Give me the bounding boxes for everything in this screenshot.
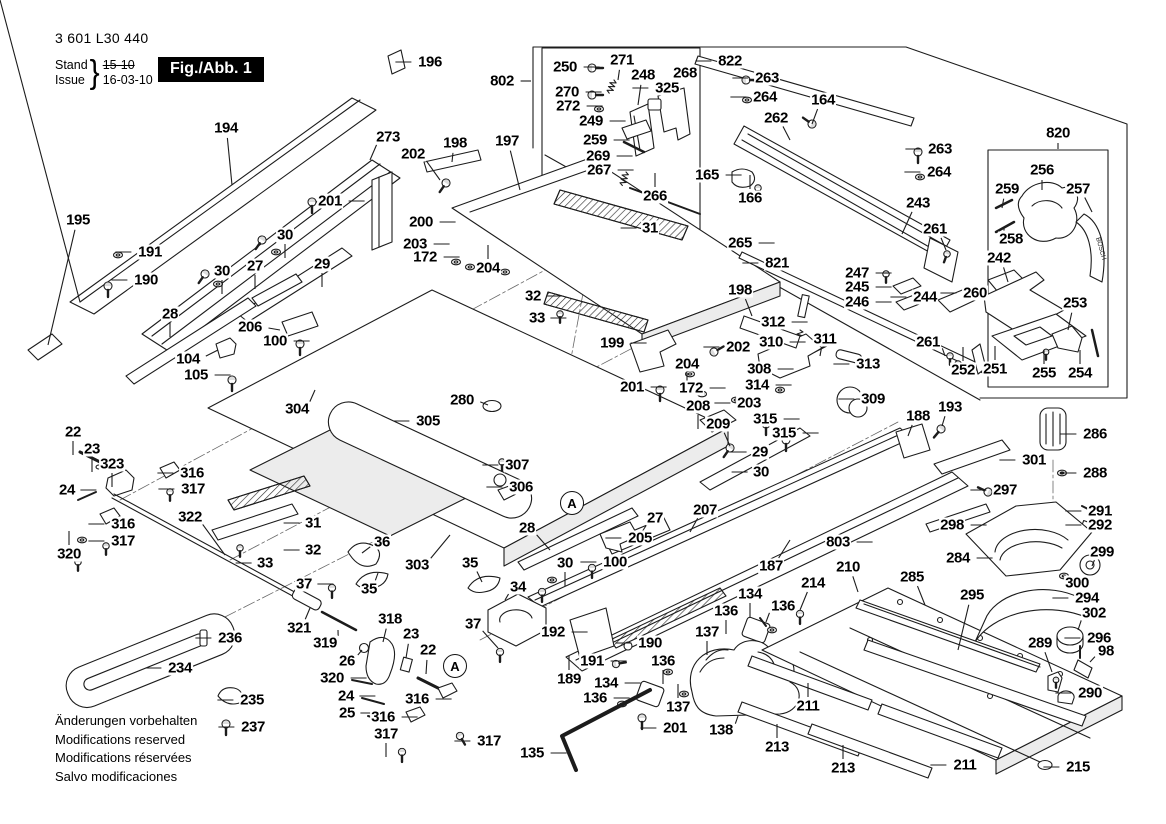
callout-197: 197 [494, 134, 520, 149]
leader-line [406, 644, 408, 658]
callout-237: 237 [240, 720, 266, 735]
callout-210: 210 [835, 560, 861, 575]
leader-line [902, 212, 912, 234]
callout-318: 318 [377, 612, 403, 627]
leader-line [783, 126, 790, 140]
leader-line [310, 390, 315, 402]
callout-271: 271 [609, 53, 635, 68]
callout-311: 311 [813, 332, 838, 347]
callout-319: 319 [312, 636, 338, 651]
callout-246: 246 [844, 295, 870, 310]
leader-line [1004, 267, 1008, 282]
leader-line [958, 605, 969, 650]
callout-306: 306 [508, 480, 534, 495]
callout-297: 297 [992, 483, 1018, 498]
callout-23: 23 [83, 442, 101, 457]
callout-37: 37 [295, 577, 313, 592]
figure-label: Fig./Abb. 1 [158, 57, 264, 82]
leader-line [452, 153, 453, 162]
callout-803: 803 [825, 535, 851, 550]
callout-208: 208 [685, 399, 711, 414]
callout-253: 253 [1062, 296, 1088, 311]
callout-213: 213 [764, 740, 790, 755]
callout-195: 195 [65, 213, 91, 228]
callout-35: 35 [360, 582, 378, 597]
callout-24: 24 [58, 483, 76, 498]
callout-313: 313 [855, 357, 881, 372]
callout-256: 256 [1029, 163, 1055, 178]
callout-135: 135 [519, 746, 545, 761]
callout-209: 209 [705, 417, 731, 432]
callout-325: 325 [654, 81, 680, 96]
callout-28: 28 [518, 521, 536, 536]
callout-255: 255 [1031, 366, 1057, 381]
callout-172: 172 [678, 381, 704, 396]
callout-821: 821 [764, 256, 790, 271]
leader-line [362, 547, 370, 553]
callout-29: 29 [751, 445, 769, 460]
callout-316: 316 [370, 710, 396, 725]
callout-265: 265 [727, 236, 753, 251]
callout-316: 316 [404, 692, 430, 707]
callout-298: 298 [939, 518, 965, 533]
callout-201: 201 [619, 380, 645, 395]
callout-191: 191 [137, 245, 163, 260]
callout-251: 251 [982, 362, 1008, 377]
leader-line [48, 230, 75, 345]
callout-172: 172 [412, 250, 438, 265]
callout-211: 211 [953, 758, 978, 773]
callout-236: 236 [217, 631, 243, 646]
callout-264: 264 [926, 165, 952, 180]
leader-line [1090, 657, 1095, 662]
callout-204: 204 [475, 261, 501, 276]
leader-line [618, 70, 619, 80]
callout-33: 33 [256, 556, 274, 571]
callout-272: 272 [555, 99, 581, 114]
callout-317: 317 [180, 482, 206, 497]
callout-28: 28 [161, 307, 179, 322]
callout-301: 301 [1021, 453, 1047, 468]
callout-202: 202 [400, 147, 426, 162]
callout-193: 193 [937, 400, 963, 415]
notice-fr: Modifications réservées [55, 749, 197, 768]
callout-205: 205 [627, 531, 653, 546]
leader-line [1078, 620, 1081, 630]
notice-es: Salvo modificaciones [55, 768, 197, 787]
callout-25: 25 [338, 706, 356, 721]
leader-line [1085, 198, 1092, 212]
notice-de: Änderungen vorbehalten [55, 712, 197, 731]
leader-line [375, 573, 378, 580]
leader-line [779, 540, 790, 558]
modifications-notice: Änderungen vorbehalten Modifications res… [55, 712, 197, 786]
callout-257: 257 [1065, 182, 1091, 197]
leader-line [537, 535, 550, 550]
callout-315: 315 [771, 426, 797, 441]
callout-34: 34 [509, 580, 527, 595]
notice-en: Modifications reserved [55, 731, 197, 750]
callout-307: 307 [504, 458, 530, 473]
callout-31: 31 [641, 221, 659, 236]
callout-211: 211 [796, 699, 821, 714]
callout-202: 202 [725, 340, 751, 355]
callout-321: 321 [286, 621, 312, 636]
callout-35: 35 [461, 556, 479, 571]
callout-285: 285 [899, 570, 925, 585]
parts-diagram-page: BOSCH [0, 0, 1166, 824]
leader-line [269, 328, 280, 330]
callout-199: 199 [599, 336, 625, 351]
callout-206: 206 [237, 320, 263, 335]
leader-line [820, 349, 821, 356]
leader-line [505, 594, 509, 600]
leader-line [483, 631, 498, 648]
leader-line [745, 299, 752, 316]
callout-316: 316 [179, 466, 205, 481]
callout-317: 317 [373, 727, 399, 742]
callout-250: 250 [552, 60, 578, 75]
callout-136: 136 [650, 654, 676, 669]
callout-317: 317 [476, 734, 502, 749]
callout-294: 294 [1074, 591, 1100, 606]
callout-322: 322 [177, 510, 203, 525]
leader-line [203, 524, 225, 555]
callout-214: 214 [800, 576, 826, 591]
callout-187: 187 [758, 559, 784, 574]
callout-22: 22 [64, 425, 82, 440]
callout-284: 284 [945, 551, 971, 566]
callout-137: 137 [694, 625, 720, 640]
leader-line [942, 416, 945, 426]
callout-268: 268 [672, 66, 698, 81]
callout-314: 314 [744, 378, 770, 393]
callout-310: 310 [758, 335, 784, 350]
stand-value: 15-10 [103, 58, 153, 73]
callout-305: 305 [415, 414, 441, 429]
callout-252: 252 [950, 363, 976, 378]
leader-line [735, 716, 738, 724]
callout-36: 36 [373, 535, 391, 550]
callout-234: 234 [167, 661, 193, 676]
leader-line [908, 425, 912, 436]
title-block: 3 601 L30 440 Stand Issue } 15-10 16-03-… [55, 30, 153, 90]
callout-165: 165 [694, 168, 720, 183]
callout-266: 266 [642, 189, 668, 204]
callout-136: 136 [713, 604, 739, 619]
callout-30: 30 [556, 556, 574, 571]
callout-200: 200 [408, 215, 434, 230]
leader-line [812, 109, 818, 124]
callout-303: 303 [404, 558, 430, 573]
callout-259: 259 [582, 133, 608, 148]
callout-189: 189 [556, 672, 582, 687]
leader-line [724, 433, 730, 446]
callout-260: 260 [962, 286, 988, 301]
callout-29: 29 [313, 257, 331, 272]
leader-line [480, 402, 488, 405]
callout-299: 299 [1089, 545, 1115, 560]
callout-23: 23 [402, 627, 420, 642]
callout-264: 264 [752, 90, 778, 105]
callout-242: 242 [986, 251, 1012, 266]
callout-295: 295 [959, 588, 985, 603]
callout-136: 136 [582, 691, 608, 706]
callout-300: 300 [1064, 576, 1090, 591]
leader-line [1002, 199, 1004, 208]
callout-261: 261 [922, 222, 948, 237]
callout-267: 267 [586, 163, 612, 178]
callout-259: 259 [994, 182, 1020, 197]
leader-line [426, 660, 427, 674]
callout-244: 244 [912, 290, 938, 305]
callout-245: 245 [844, 280, 870, 295]
callout-290: 290 [1077, 686, 1103, 701]
callout-323: 323 [99, 457, 125, 472]
callout-316: 316 [110, 517, 136, 532]
leader-line [800, 592, 807, 610]
leader-line [206, 350, 218, 356]
callout-32: 32 [524, 289, 542, 304]
callout-33: 33 [528, 311, 546, 326]
callout-201: 201 [662, 721, 688, 736]
callout-30: 30 [276, 228, 294, 243]
detail-marker-A: A [443, 654, 467, 678]
callout-215: 215 [1065, 760, 1091, 775]
callout-320: 320 [319, 671, 345, 686]
callout-198: 198 [442, 136, 468, 151]
callout-207: 207 [692, 503, 718, 518]
callout-190: 190 [133, 273, 159, 288]
callout-258: 258 [998, 232, 1024, 247]
leader-line [426, 161, 440, 180]
callout-822: 822 [717, 54, 743, 69]
callout-213: 213 [830, 761, 856, 776]
leader-line [227, 138, 232, 185]
callout-204: 204 [674, 357, 700, 372]
callout-286: 286 [1082, 427, 1108, 442]
callout-166: 166 [737, 191, 763, 206]
leader-line [917, 586, 925, 605]
callout-138: 138 [708, 723, 734, 738]
leader-line [1045, 652, 1052, 672]
callout-191: 191 [579, 654, 605, 669]
leader-line [431, 535, 450, 558]
leader-line [358, 650, 362, 655]
stand-label: Stand [55, 58, 88, 73]
leader-line [383, 629, 386, 642]
callout-320: 320 [56, 547, 82, 562]
callout-134: 134 [737, 587, 763, 602]
callout-37: 37 [464, 617, 482, 632]
callout-201: 201 [317, 194, 343, 209]
callout-100: 100 [262, 334, 288, 349]
callout-304: 304 [284, 402, 310, 417]
leader-line [690, 518, 698, 532]
callout-27: 27 [246, 259, 264, 274]
callout-312: 312 [760, 315, 786, 330]
callout-263: 263 [754, 71, 780, 86]
callout-188: 188 [905, 409, 931, 424]
callout-820: 820 [1045, 126, 1071, 141]
leader-line [1092, 560, 1094, 566]
leader-line [305, 608, 310, 619]
callout-288: 288 [1082, 466, 1108, 481]
callout-243: 243 [905, 196, 931, 211]
callout-30: 30 [213, 264, 231, 279]
callout-164: 164 [810, 93, 836, 108]
callout-104: 104 [175, 352, 201, 367]
callout-98: 98 [1097, 644, 1115, 659]
callout-198: 198 [727, 283, 753, 298]
callout-100: 100 [602, 555, 628, 570]
callout-262: 262 [763, 111, 789, 126]
callout-273: 273 [375, 130, 401, 145]
callout-254: 254 [1067, 366, 1093, 381]
leader-line [853, 576, 858, 592]
callout-31: 31 [304, 516, 322, 531]
leader-line [942, 348, 945, 356]
callout-302: 302 [1081, 606, 1107, 621]
callout-248: 248 [630, 68, 656, 83]
part-number: 3 601 L30 440 [55, 30, 153, 46]
callout-289: 289 [1027, 636, 1053, 651]
leader-line [941, 238, 946, 250]
callout-134: 134 [593, 676, 619, 691]
callout-194: 194 [213, 121, 239, 136]
callout-22: 22 [419, 643, 437, 658]
callout-136: 136 [770, 599, 796, 614]
callout-27: 27 [646, 511, 664, 526]
callout-190: 190 [637, 636, 663, 651]
callout-263: 263 [927, 142, 953, 157]
callout-203: 203 [736, 396, 762, 411]
callout-249: 249 [578, 114, 604, 129]
leader-line [766, 613, 769, 622]
issue-value: 16-03-10 [103, 73, 153, 88]
callout-30: 30 [752, 465, 770, 480]
brace-glyph: } [90, 54, 100, 91]
leader-line [477, 571, 482, 582]
callout-32: 32 [304, 543, 322, 558]
callout-26: 26 [338, 654, 356, 669]
callout-309: 309 [860, 392, 886, 407]
detail-marker-A: A [560, 491, 584, 515]
callout-261: 261 [915, 335, 941, 350]
callout-105: 105 [183, 368, 209, 383]
callout-317: 317 [110, 534, 136, 549]
callout-292: 292 [1087, 518, 1113, 533]
callout-308: 308 [746, 362, 772, 377]
leader-line [370, 145, 377, 160]
callout-802: 802 [489, 74, 515, 89]
callout-280: 280 [449, 393, 475, 408]
leader-line [1068, 313, 1072, 330]
callout-192: 192 [540, 625, 566, 640]
callout-235: 235 [239, 693, 265, 708]
callout-24: 24 [337, 689, 355, 704]
callout-137: 137 [665, 700, 691, 715]
callout-196: 196 [417, 55, 443, 70]
issue-label: Issue [55, 73, 88, 88]
leader-line [510, 151, 520, 190]
